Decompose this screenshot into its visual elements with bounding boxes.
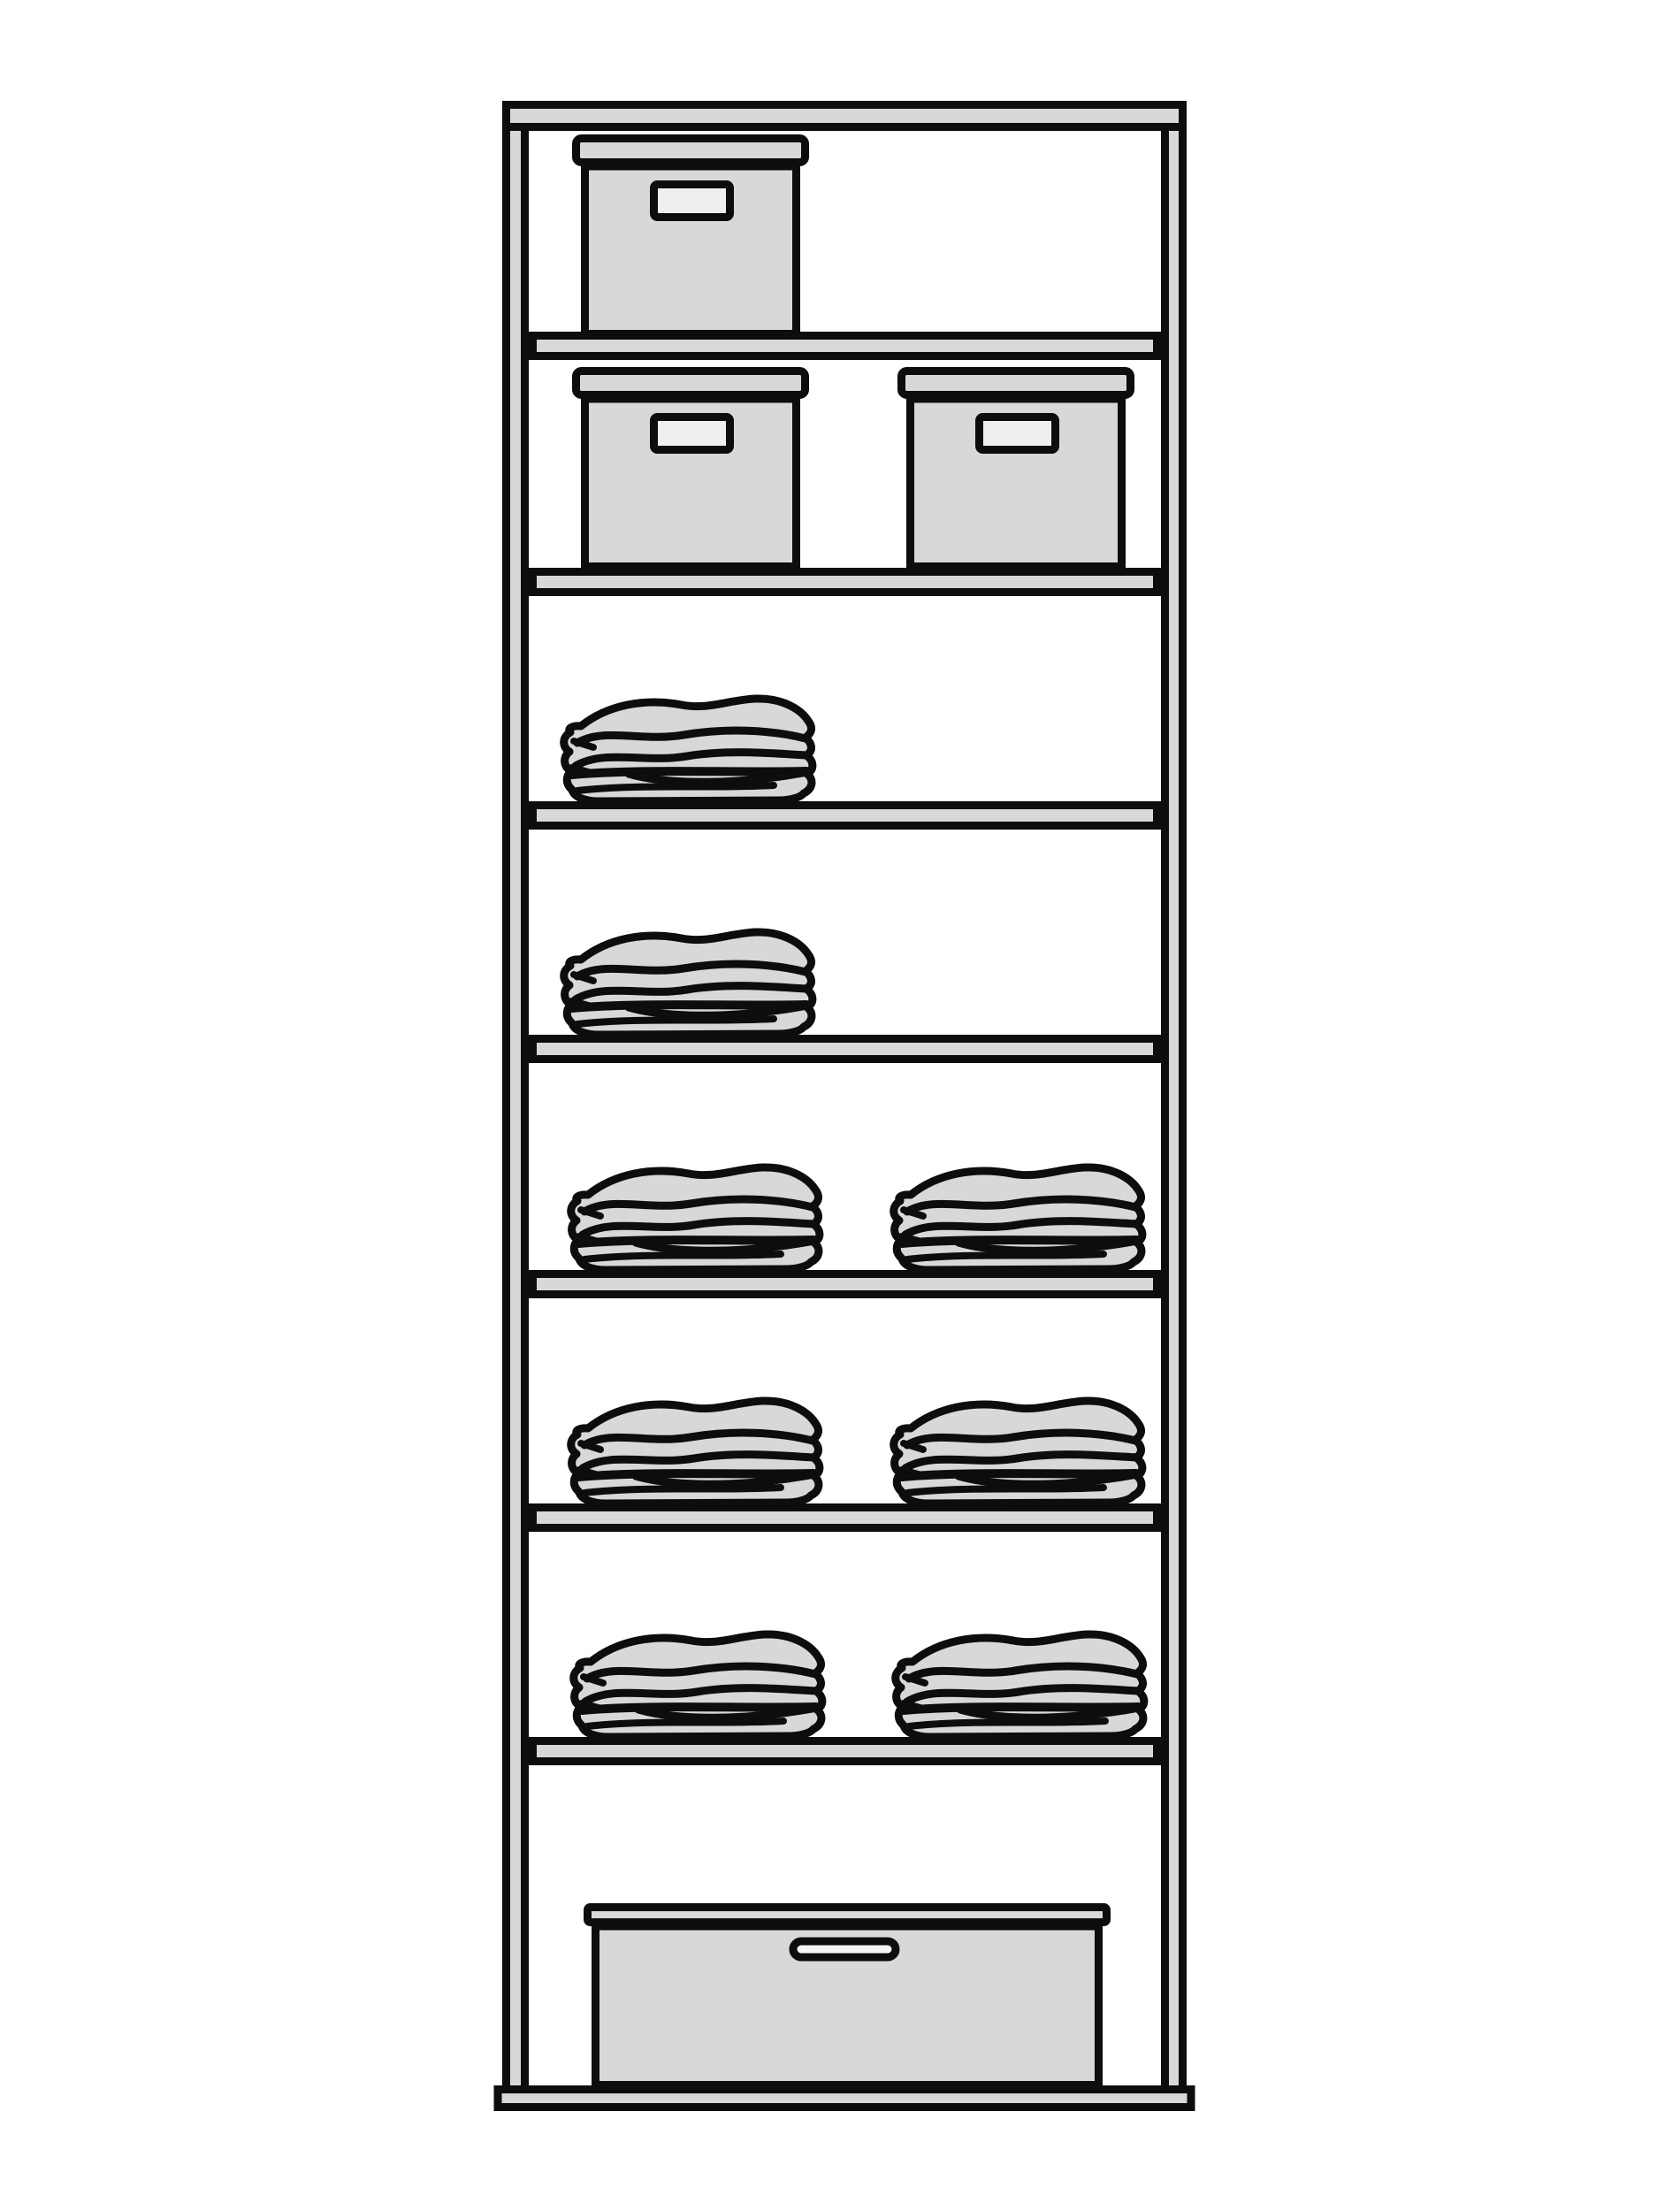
illustration-canvas	[0, 0, 1680, 2211]
shelf-1	[533, 336, 1157, 356]
cabinet-right-panel	[1165, 105, 1183, 2108]
cabinet-top-panel	[507, 105, 1183, 127]
towel-stack-6	[894, 1401, 1142, 1503]
towel-stack-4	[894, 1167, 1142, 1270]
stored-items	[564, 139, 1144, 2085]
towel-stack-3	[571, 1167, 820, 1270]
shelf-5	[533, 1274, 1157, 1295]
towel-stack-2	[564, 932, 813, 1035]
shelf-3	[533, 806, 1157, 826]
cabinet-bottom-panel	[498, 2090, 1191, 2108]
towel-stack-1	[564, 699, 813, 801]
towel-stack-5	[571, 1401, 820, 1503]
shelving-unit-illustration	[0, 0, 1680, 2211]
cabinet-left-panel	[507, 105, 525, 2108]
towel-stack-8	[896, 1634, 1144, 1737]
shelf-4	[533, 1039, 1157, 1060]
storage-box-3	[902, 371, 1131, 567]
drawer-bin	[588, 1908, 1107, 2085]
shelf-6	[533, 1508, 1157, 1528]
shelf-7	[533, 1741, 1157, 1762]
storage-box-2	[577, 371, 806, 567]
storage-box-1	[577, 139, 806, 334]
shelf-2	[533, 572, 1157, 593]
towel-stack-7	[574, 1634, 822, 1737]
